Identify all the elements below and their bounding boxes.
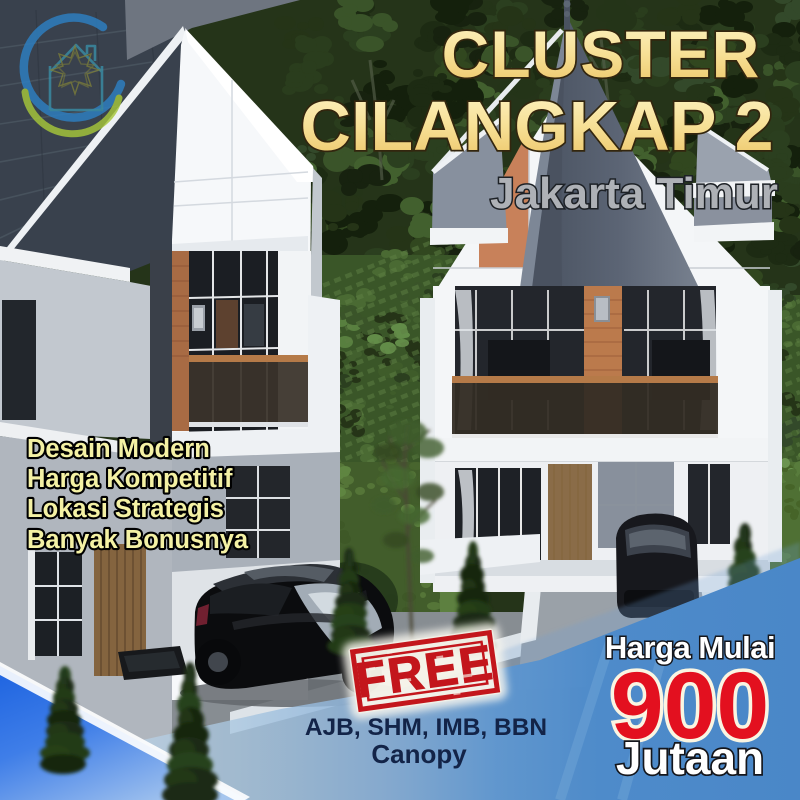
svg-text:Banyak Bonusnya: Banyak Bonusnya — [27, 526, 249, 554]
svg-text:AJB, SHM, IMB, BBN: AJB, SHM, IMB, BBN — [305, 714, 547, 741]
svg-text:Lokasi Strategis: Lokasi Strategis — [27, 495, 224, 523]
svg-text:Canopy: Canopy — [371, 739, 467, 769]
svg-text:CILANGKAP 2: CILANGKAP 2 — [300, 87, 773, 165]
svg-text:Jakarta Timur: Jakarta Timur — [490, 169, 778, 218]
svg-text:CLUSTER: CLUSTER — [442, 17, 761, 91]
svg-text:Jutaan: Jutaan — [616, 732, 764, 784]
svg-text:Desain Modern: Desain Modern — [27, 435, 210, 463]
svg-text:Harga Kompetitif: Harga Kompetitif — [27, 465, 233, 493]
